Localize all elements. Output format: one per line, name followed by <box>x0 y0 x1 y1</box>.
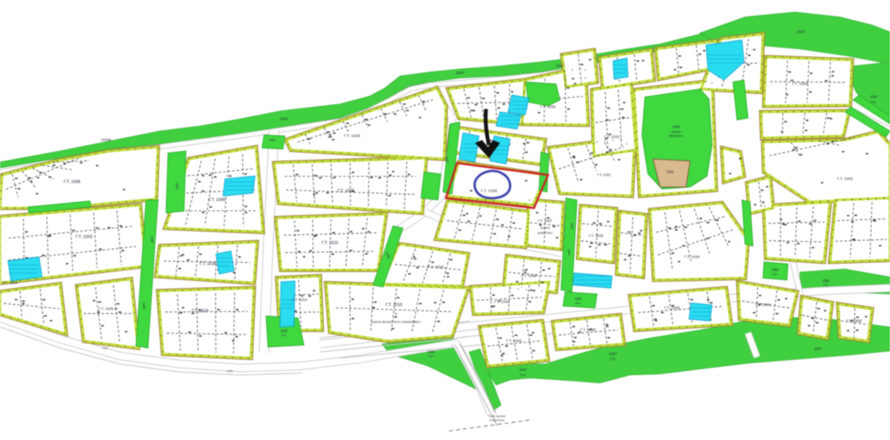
svg-text:1007: 1007 <box>150 236 155 243</box>
svg-text:ΧΩΡΟΣ ΒΙΟΛΟΓΙΚΟΥ ΚΑΘΑΡΙΣΜΟΥ: ΧΩΡΟΣ ΒΙΟΛΟΓΙΚΟΥ ΚΑΘΑΡΙΣΜΟΥ <box>371 320 421 324</box>
svg-text:Γ.Τ. 1038: Γ.Τ. 1038 <box>521 274 536 278</box>
svg-text:1047: 1047 <box>814 347 822 351</box>
svg-text:Γ.Τ. 1046β: Γ.Τ. 1046β <box>846 319 862 323</box>
svg-text:Γ.Τ. 1014: Γ.Τ. 1014 <box>293 298 307 302</box>
svg-text:Γ.Τ. 1010: Γ.Τ. 1010 <box>192 308 209 313</box>
svg-text:Γ.Τ. 1042: Γ.Τ. 1042 <box>494 300 509 304</box>
svg-text:Γ.Τ. 1045: Γ.Τ. 1045 <box>580 328 595 332</box>
svg-text:1047: 1047 <box>797 30 805 34</box>
svg-text:1033: 1033 <box>666 170 673 174</box>
svg-text:1047: 1047 <box>519 368 527 372</box>
svg-text:Συγκρότημα: Συγκρότημα <box>489 418 504 422</box>
svg-text:Γ.Τ. 1028: Γ.Τ. 1028 <box>481 188 498 193</box>
svg-text:Γ.Τ. 1016: Γ.Τ. 1016 <box>200 261 217 266</box>
svg-text:1047: 1047 <box>556 64 564 68</box>
svg-text:Γ.Τ. 1021: Γ.Τ. 1021 <box>597 173 611 177</box>
svg-text:Γ.Τ. 1003: Γ.Τ. 1003 <box>76 234 93 239</box>
svg-text:Γ.Τ. 1053: Γ.Τ. 1053 <box>837 177 852 181</box>
svg-text:Σ.Δ.: Σ.Δ. <box>428 354 433 358</box>
svg-text:Γ.Τ. 1030: Γ.Τ. 1030 <box>540 105 555 109</box>
svg-text:Γ.Τ. 1009: Γ.Τ. 1009 <box>209 197 226 202</box>
svg-text:Γ.Τ. 1008: Γ.Τ. 1008 <box>64 179 81 184</box>
svg-text:Σ.Δ.: Σ.Δ. <box>575 301 580 305</box>
svg-text:Σ.Δ.: Σ.Δ. <box>871 100 877 104</box>
svg-text:1039: 1039 <box>570 222 575 229</box>
svg-text:Γ.Τ. 1054: Γ.Τ. 1054 <box>792 82 807 86</box>
svg-text:Γ.Τ. 1049: Γ.Τ. 1049 <box>755 303 770 307</box>
svg-text:Γ.Τ. 1031: Γ.Τ. 1031 <box>604 135 619 139</box>
svg-text:1002: 1002 <box>227 369 233 373</box>
svg-text:1047: 1047 <box>280 117 288 121</box>
svg-text:Σ.Δ.: Σ.Δ. <box>610 357 616 361</box>
svg-text:Γ.Τ. 1035: Γ.Τ. 1035 <box>589 234 603 238</box>
svg-text:Γ.Τ. 1005 ΙΙΙ: Γ.Τ. 1005 ΙΙΙ <box>99 307 117 311</box>
svg-text:ΧΩΡΟΣ: ΧΩΡΟΣ <box>540 226 550 230</box>
svg-text:Σ.Δ.: Σ.Δ. <box>520 373 526 377</box>
svg-text:Γ.Τ. 1015: Γ.Τ. 1015 <box>386 302 403 307</box>
svg-text:1006: 1006 <box>142 302 147 309</box>
svg-text:Γ.Τ. 1025: Γ.Τ. 1025 <box>338 188 355 193</box>
svg-text:ΔΗΜΟΤΙΚΟ: ΔΗΜΟΤΙΚΟ <box>538 231 554 235</box>
svg-text:Γ.Τ. 1022: Γ.Τ. 1022 <box>322 240 339 245</box>
svg-text:Γ.Τ. 1026: Γ.Τ. 1026 <box>344 133 361 138</box>
svg-text:ΠΡΑΣΙΝΟΥ: ΠΡΑΣΙΝΟΥ <box>669 134 683 138</box>
svg-text:1043Α: 1043Α <box>101 138 112 142</box>
svg-text:1047: 1047 <box>609 352 617 356</box>
svg-text:Σ.Δ.: Σ.Δ. <box>772 272 777 276</box>
svg-text:Σ.Δ.: Σ.Δ. <box>823 283 828 287</box>
svg-text:Γ.Τ. 1004: Γ.Τ. 1004 <box>2 281 17 285</box>
svg-text:1026: 1026 <box>175 182 180 189</box>
svg-text:Γ.Τ. 1019: Γ.Τ. 1019 <box>428 265 443 269</box>
svg-text:1047: 1047 <box>456 71 464 75</box>
svg-text:ΙΙ: ΙΙ <box>395 312 397 316</box>
svg-text:1047: 1047 <box>870 95 878 99</box>
svg-text:Σ.Δ.: Σ.Δ. <box>281 333 286 337</box>
svg-text:1044: 1044 <box>567 248 572 255</box>
svg-text:Γ.Τ. 1034: Γ.Τ. 1034 <box>684 255 699 259</box>
svg-text:1013: 1013 <box>269 138 276 142</box>
svg-text:Γ.Τ. 1043: Γ.Τ. 1043 <box>506 339 521 343</box>
svg-text:Γ.Τ. 1037: Γ.Τ. 1037 <box>538 219 552 223</box>
svg-text:Γ.Τ. 1046: Γ.Τ. 1046 <box>664 306 679 310</box>
svg-text:1002: 1002 <box>102 346 108 350</box>
svg-text:1029: 1029 <box>672 125 680 129</box>
